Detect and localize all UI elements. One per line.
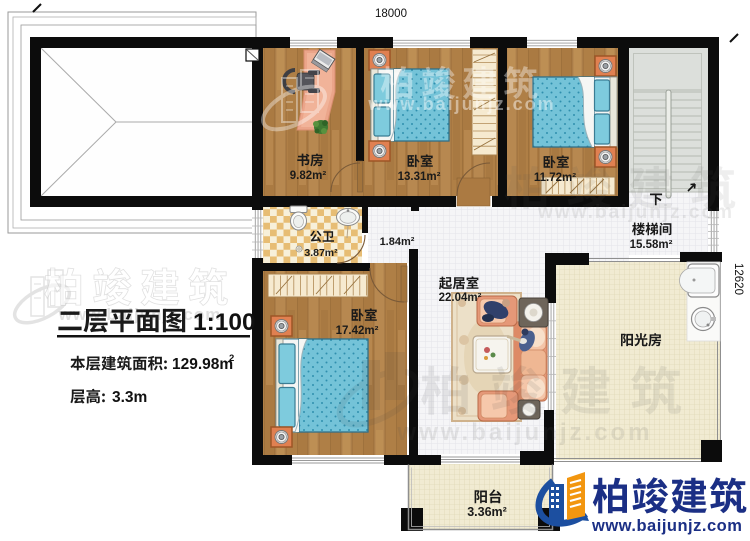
- svg-text:22.04m²: 22.04m²: [439, 292, 482, 304]
- svg-text:2: 2: [229, 353, 234, 364]
- svg-text:13.31m²: 13.31m²: [398, 171, 441, 183]
- svg-text:3.3m: 3.3m: [112, 389, 147, 406]
- svg-text:www.baijunjz.com: www.baijunjz.com: [396, 419, 652, 446]
- svg-text:12620: 12620: [732, 263, 744, 295]
- svg-text:17.42m²: 17.42m²: [336, 325, 379, 337]
- svg-text:129.98m: 129.98m: [172, 356, 233, 373]
- svg-text:www.baijunjz.com: www.baijunjz.com: [591, 517, 742, 535]
- svg-text:1.84m²: 1.84m²: [380, 236, 415, 248]
- svg-text:18000: 18000: [375, 8, 407, 20]
- svg-text:9.82m²: 9.82m²: [290, 170, 327, 182]
- svg-text:www.baijunjz.com: www.baijunjz.com: [367, 94, 555, 114]
- svg-text:1:100: 1:100: [193, 309, 256, 336]
- svg-text:3.36m²: 3.36m²: [467, 505, 507, 519]
- svg-text:www.baijunjz.com: www.baijunjz.com: [537, 202, 734, 223]
- svg-text:15.58m²: 15.58m²: [630, 239, 673, 251]
- svg-text:11.72m²: 11.72m²: [534, 172, 576, 184]
- svg-text:3.87m²: 3.87m²: [304, 247, 338, 259]
